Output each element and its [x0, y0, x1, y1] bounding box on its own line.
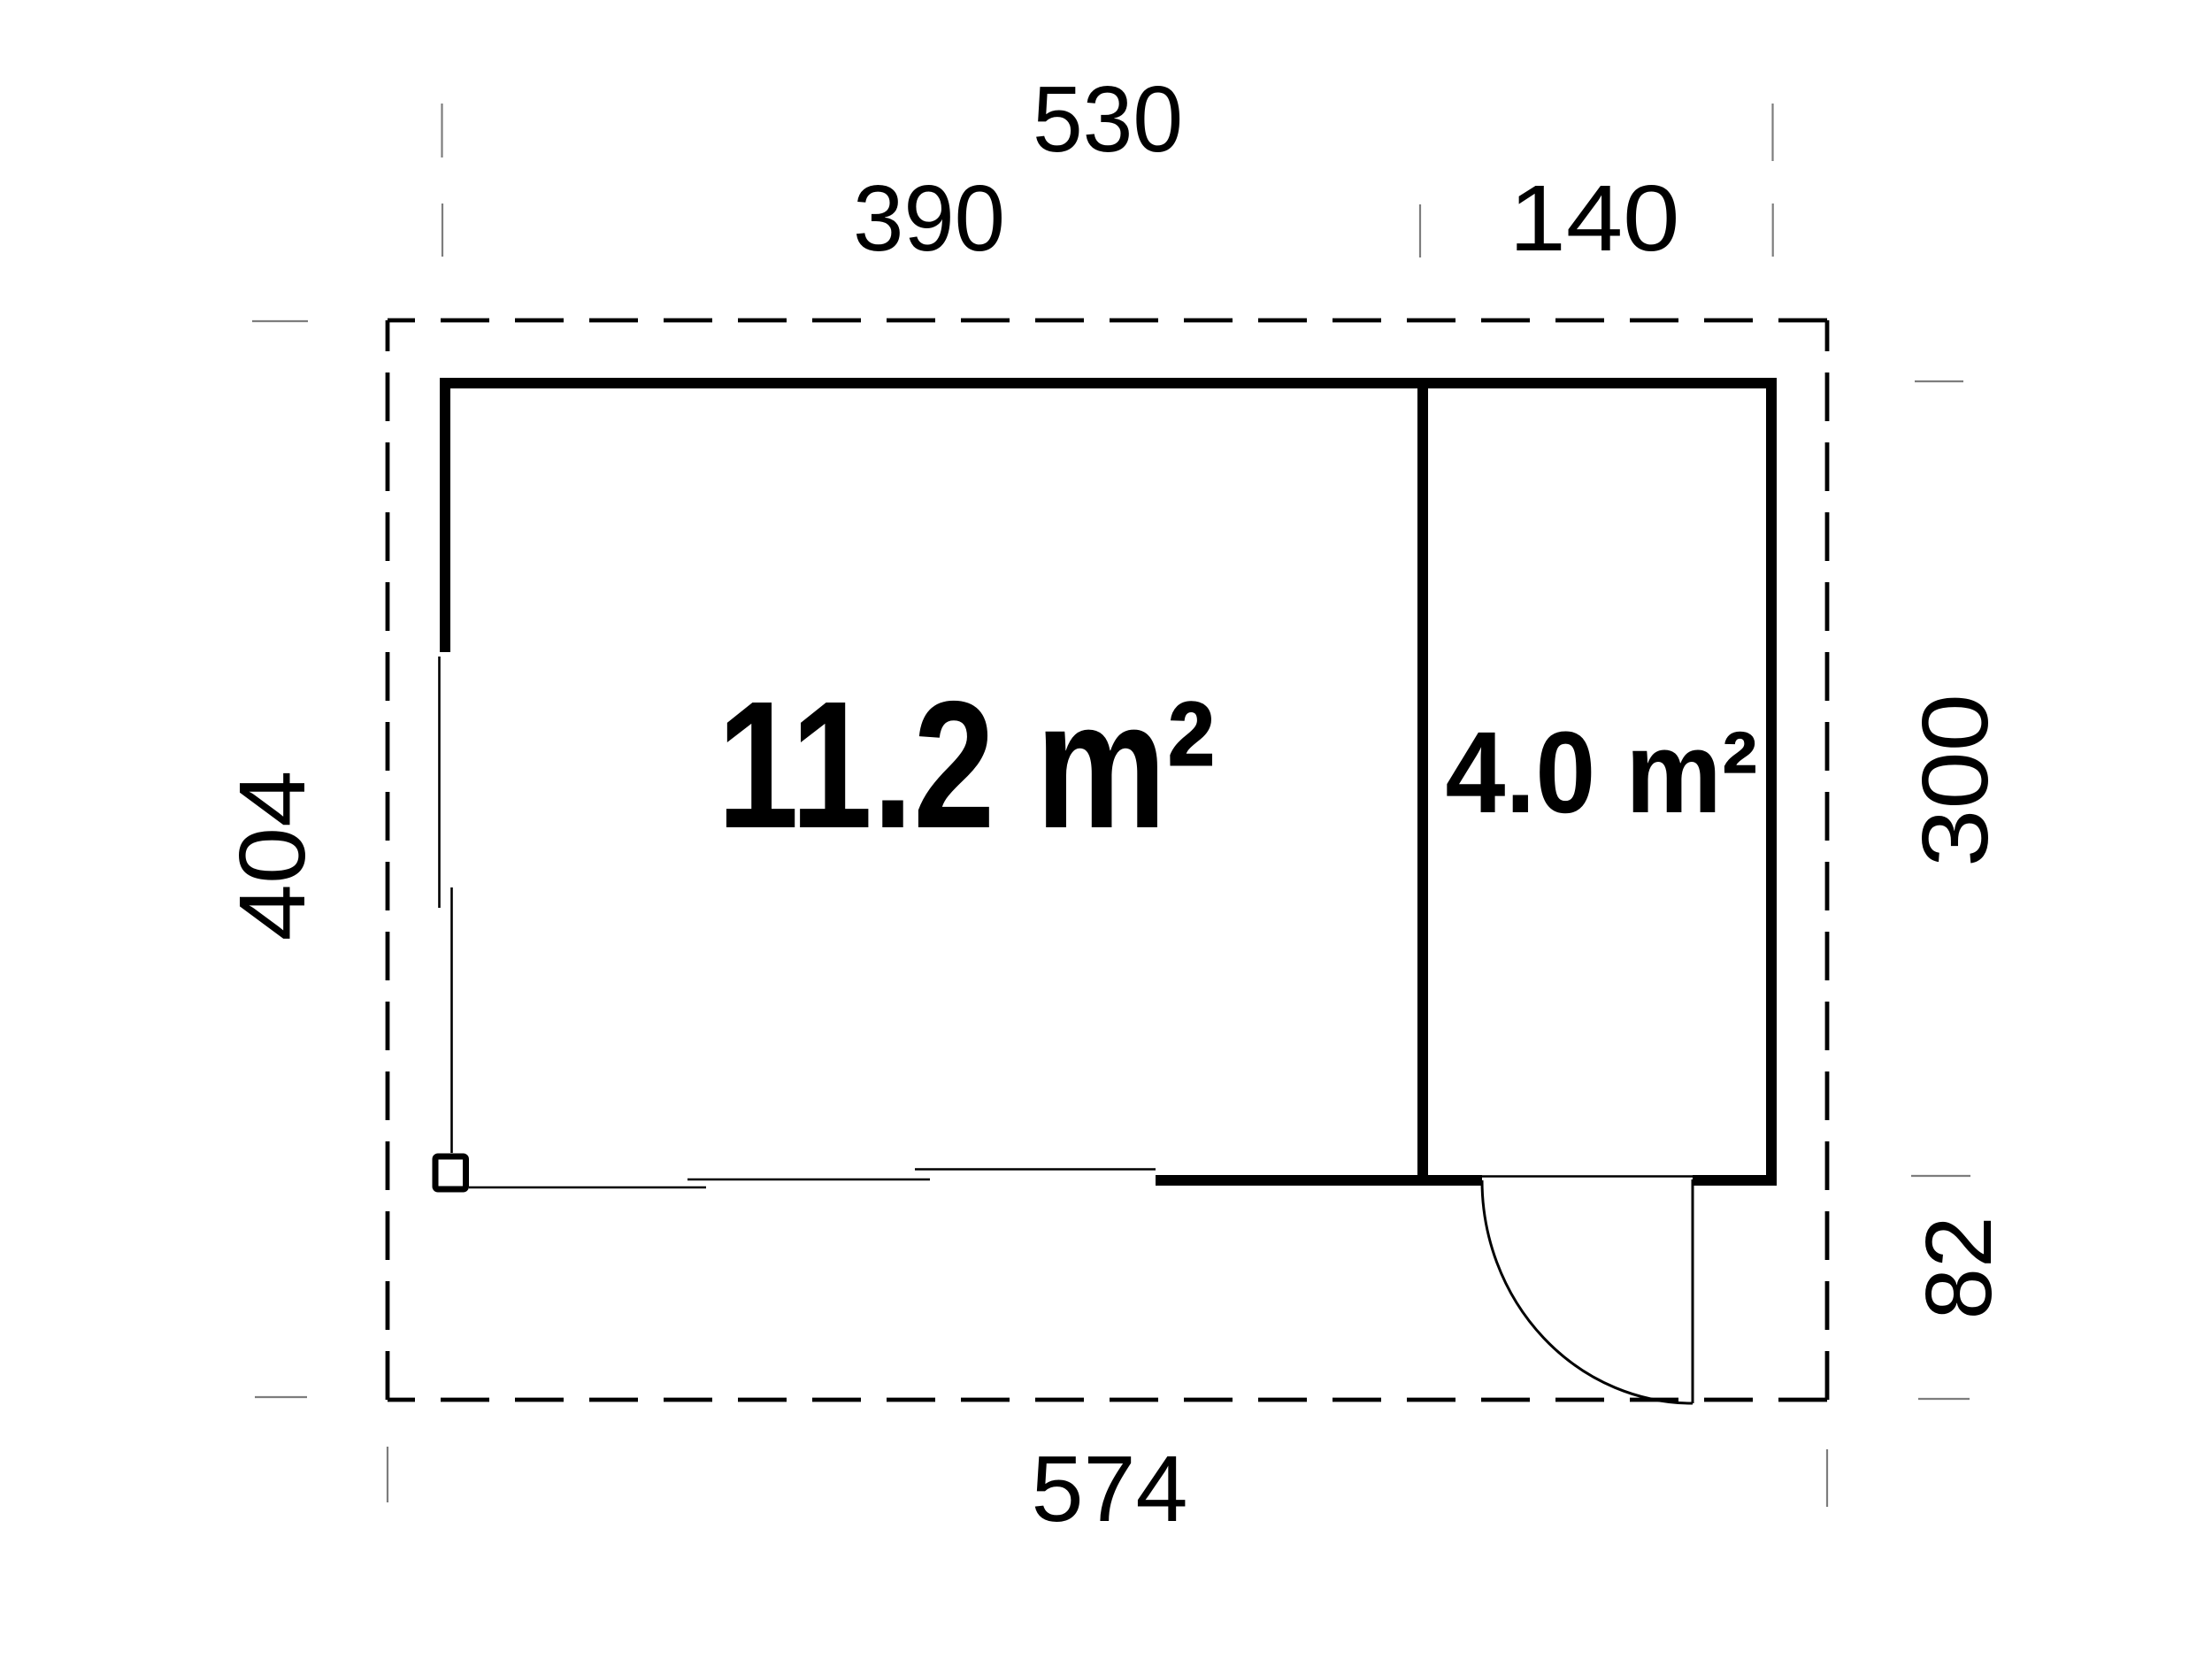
svg-text:300: 300 — [1903, 694, 2008, 867]
svg-text:82: 82 — [1907, 1217, 2011, 1320]
svg-text:404: 404 — [220, 771, 325, 941]
svg-text:4.0 m²: 4.0 m² — [1446, 707, 1758, 837]
svg-text:574: 574 — [1032, 1437, 1188, 1541]
svg-text:530: 530 — [1033, 67, 1183, 172]
svg-text:140: 140 — [1509, 166, 1680, 271]
svg-text:390: 390 — [853, 166, 1005, 271]
svg-text:11.2 m²: 11.2 m² — [718, 664, 1216, 866]
